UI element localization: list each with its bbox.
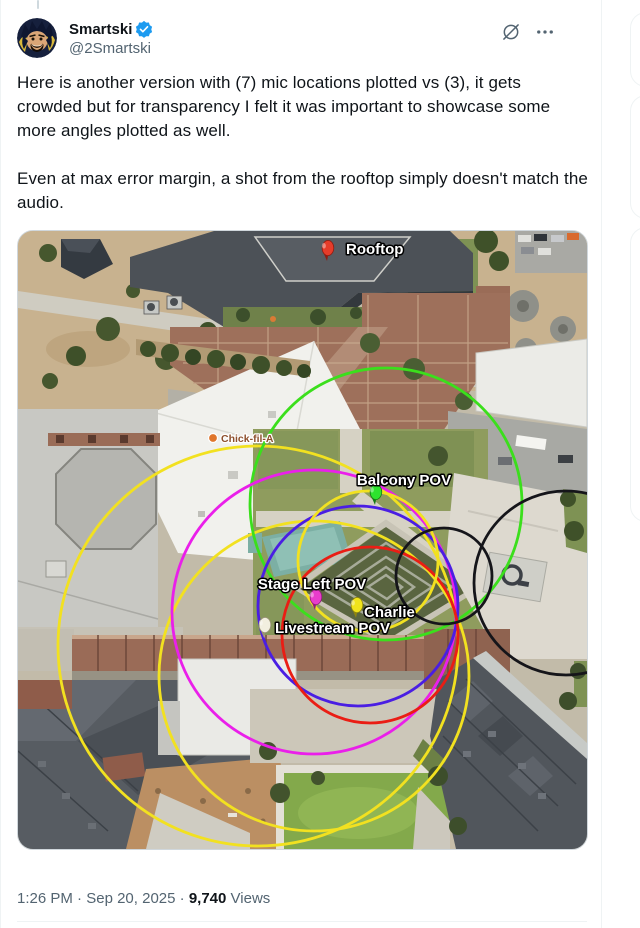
map-label-rooftop: Rooftop [346,241,403,258]
avatar-cartoon [17,18,57,58]
sidebar-card-remnant [630,227,640,522]
grok-actions-icon[interactable] [501,22,521,42]
map-label-stage-left-pov: Stage Left POV [258,576,366,593]
avatar[interactable] [17,18,57,58]
poi-marker-icon [209,434,218,443]
map-label-livestream-pov: Livestream POV [275,620,390,637]
tweet-image[interactable]: Chick-fil-ARooftopBalcony POVStage Left … [17,230,588,850]
sidebar-card-remnant [630,95,640,219]
tweet-paragraph: Here is another version with (7) mic loc… [17,71,589,143]
tweet-divider [17,921,587,922]
verified-badge-icon [135,20,153,38]
views-label: Views [226,890,270,907]
satellite-map: Chick-fil-ARooftopBalcony POVStage Left … [18,231,587,849]
poi-label: Chick-fil-A [221,433,274,445]
handle[interactable]: @2Smartski [69,40,151,57]
map-label-balcony-pov: Balcony POV [357,472,451,489]
map-label-charlie: Charlie [364,604,415,621]
timestamp: 1:26 PM · Sep 20, 2025 · [17,890,189,907]
display-name[interactable]: Smartski [69,21,132,38]
tweet-text: Here is another version with (7) mic loc… [17,71,589,215]
tweet-paragraph: Even at max error margin, a shot from th… [17,167,589,215]
ellipsis-icon[interactable] [535,22,555,42]
sidebar-card-remnant [630,12,640,87]
tweet-meta: 1:26 PM · Sep 20, 2025 · 9,740 Views [17,890,270,907]
timeline-column: Smartski @2Smartski Here is another vers… [0,0,602,928]
views-count: 9,740 [189,890,227,907]
thread-connector-line [37,0,39,9]
tweet-detail-screen: Smartski @2Smartski Here is another vers… [0,0,640,928]
